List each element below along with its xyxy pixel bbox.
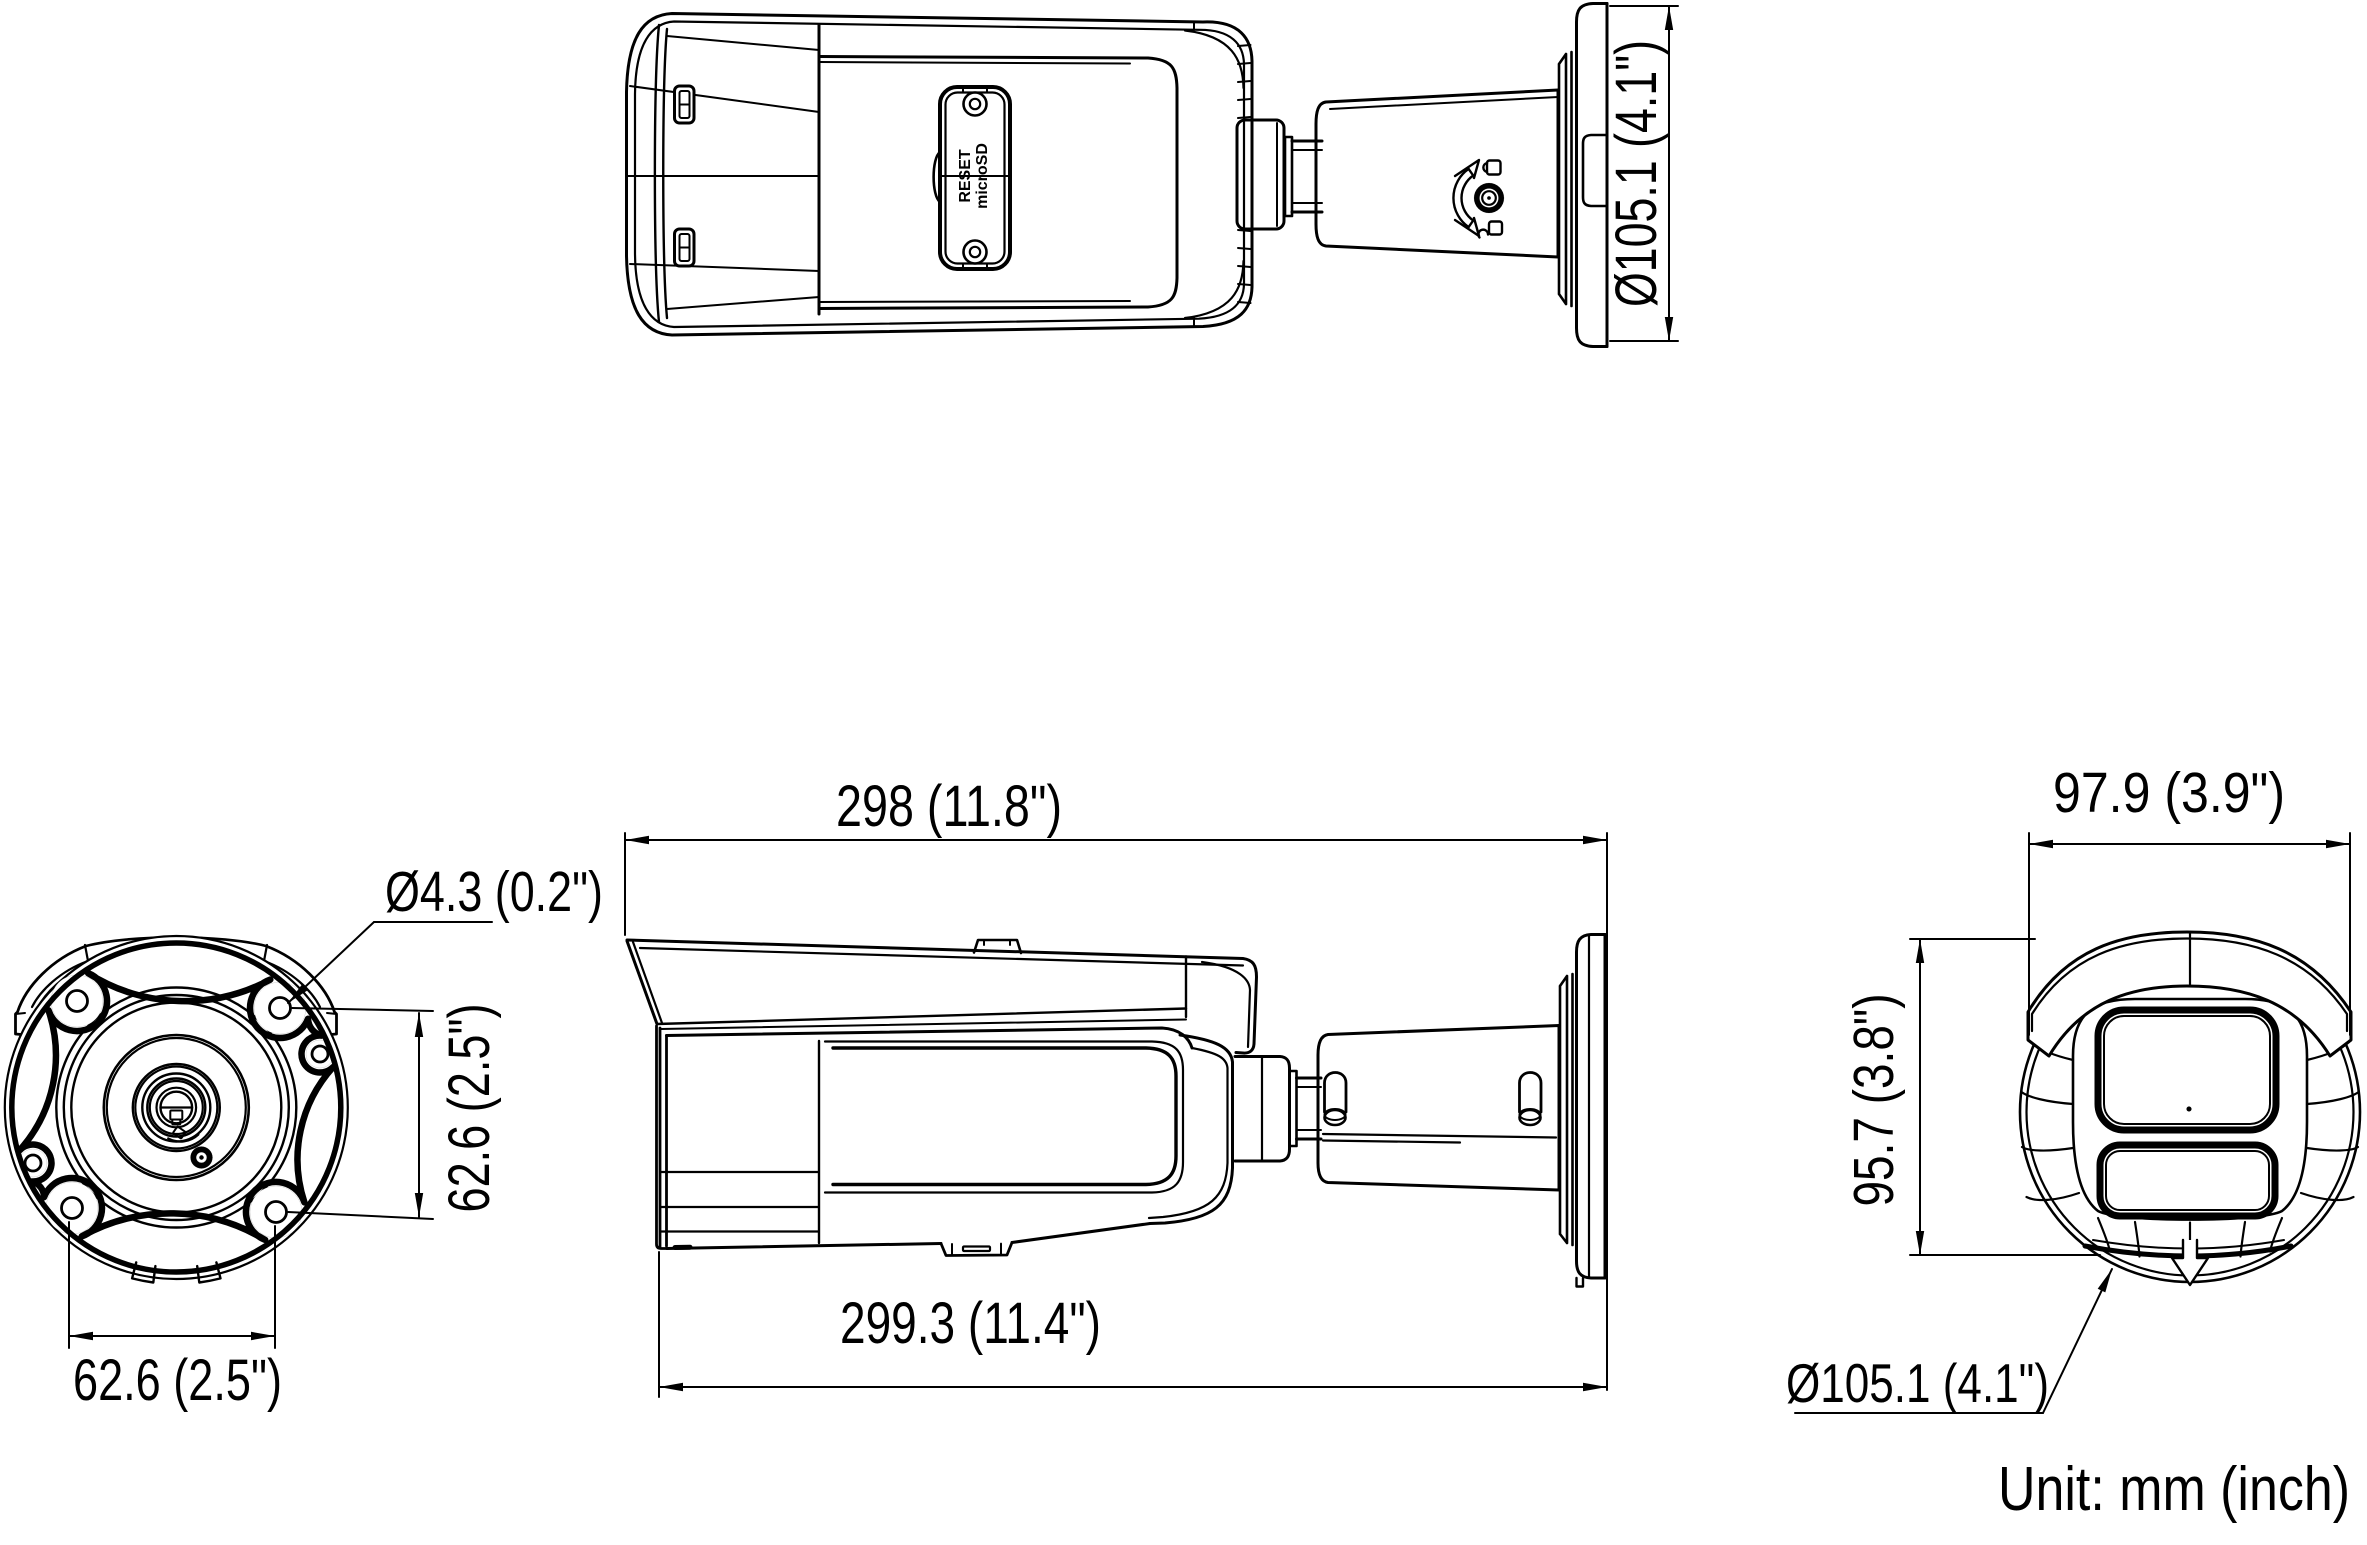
- svg-text:Ø105.1 (4.1"): Ø105.1 (4.1"): [1786, 1352, 2049, 1414]
- svg-text:Unit: mm (inch): Unit: mm (inch): [1998, 1455, 2350, 1524]
- svg-text:microSD: microSD: [974, 143, 991, 209]
- svg-text:62.6 (2.5"): 62.6 (2.5"): [437, 1004, 502, 1213]
- svg-text:298 (11.8"): 298 (11.8"): [836, 774, 1062, 839]
- svg-text:299.3 (11.4"): 299.3 (11.4"): [840, 1291, 1101, 1356]
- svg-text:RESET: RESET: [957, 149, 974, 203]
- svg-text:62.6 (2.5"): 62.6 (2.5"): [73, 1348, 282, 1413]
- svg-text:95.7 (3.8"): 95.7 (3.8"): [1842, 994, 1906, 1207]
- svg-text:Ø4.3 (0.2"): Ø4.3 (0.2"): [385, 860, 603, 924]
- svg-text:Ø105.1 (4.1"): Ø105.1 (4.1"): [1604, 40, 1669, 307]
- svg-text:97.9 (3.9"): 97.9 (3.9"): [2053, 761, 2285, 825]
